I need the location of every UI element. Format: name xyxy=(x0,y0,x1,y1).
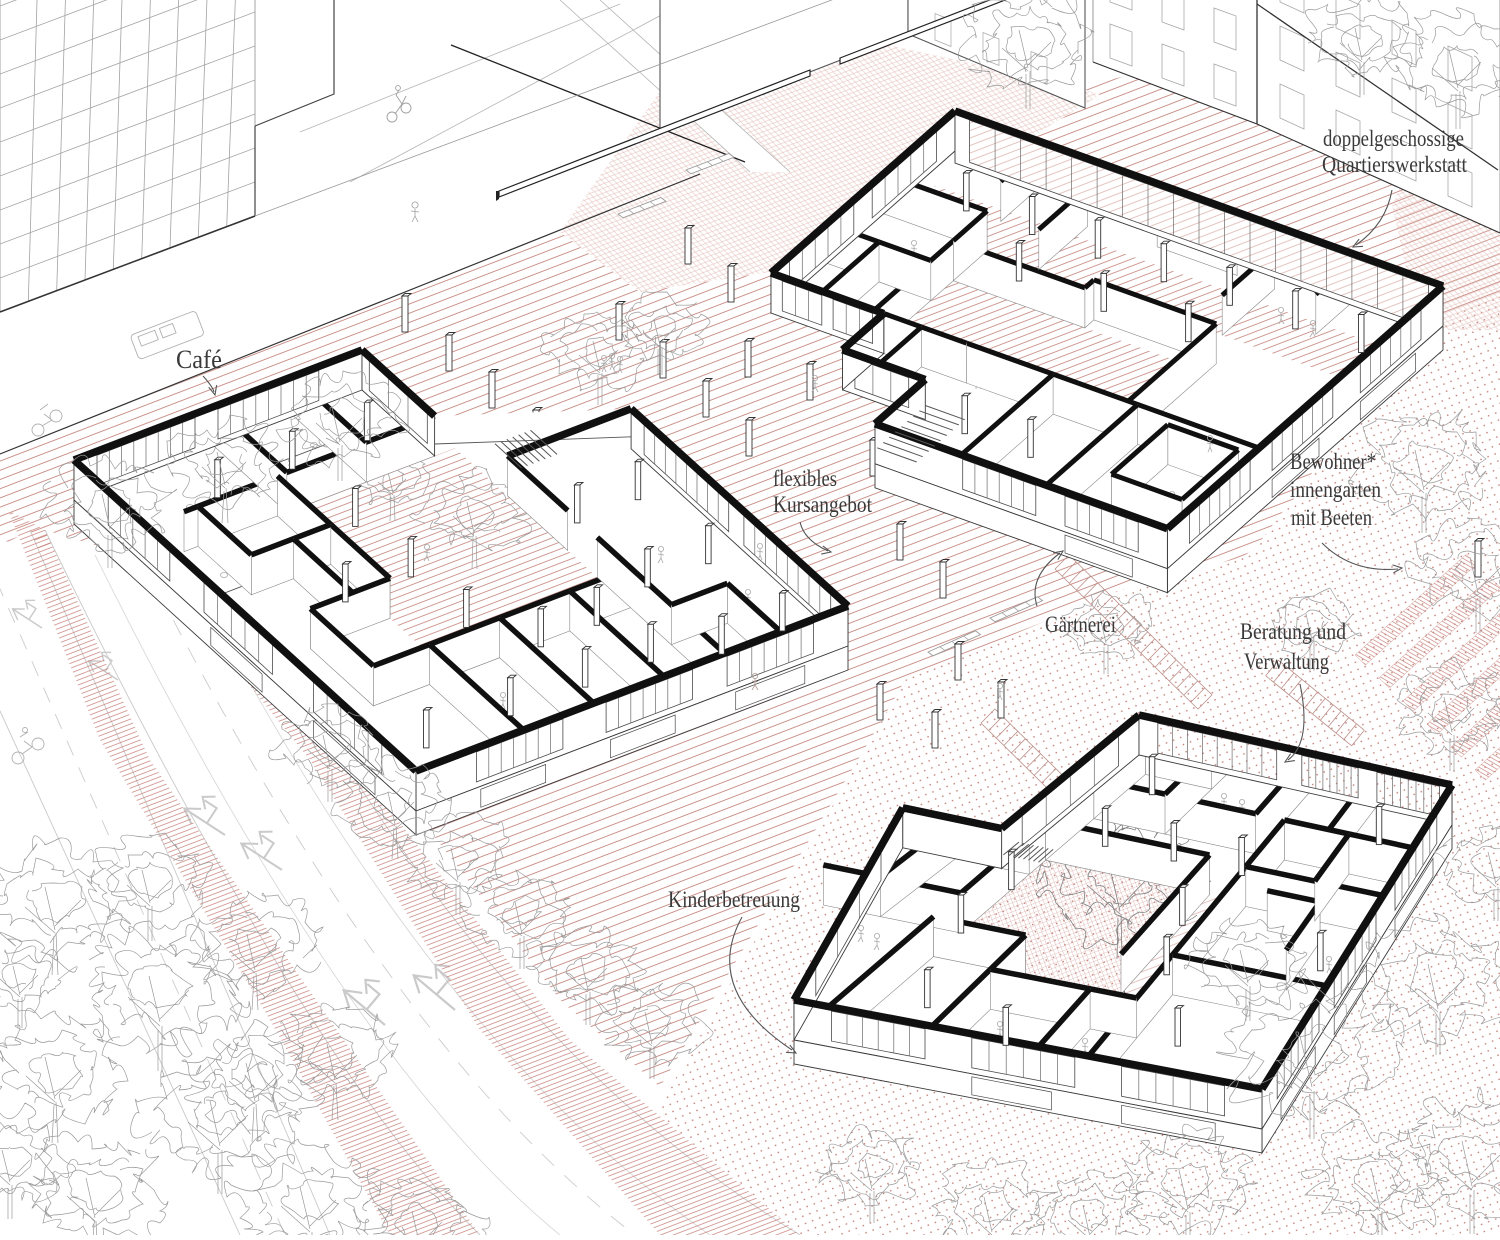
svg-text:Verwaltung: Verwaltung xyxy=(1244,649,1329,674)
svg-text:innengarten: innengarten xyxy=(1290,477,1381,502)
svg-text:Kinderbetreuung: Kinderbetreuung xyxy=(668,887,800,912)
svg-text:Kursangebot: Kursangebot xyxy=(773,492,873,517)
svg-text:Beratung und: Beratung und xyxy=(1240,619,1346,644)
svg-text:doppelgeschossige: doppelgeschossige xyxy=(1323,126,1464,151)
svg-text:Gärtnerei: Gärtnerei xyxy=(1045,612,1116,637)
svg-text:Café: Café xyxy=(176,345,222,374)
svg-text:flexibles: flexibles xyxy=(773,466,837,491)
svg-text:Bewohner*: Bewohner* xyxy=(1290,449,1376,474)
svg-text:mit Beeten: mit Beeten xyxy=(1291,505,1372,530)
svg-text:Quartierswerkstatt: Quartierswerkstatt xyxy=(1322,152,1468,177)
